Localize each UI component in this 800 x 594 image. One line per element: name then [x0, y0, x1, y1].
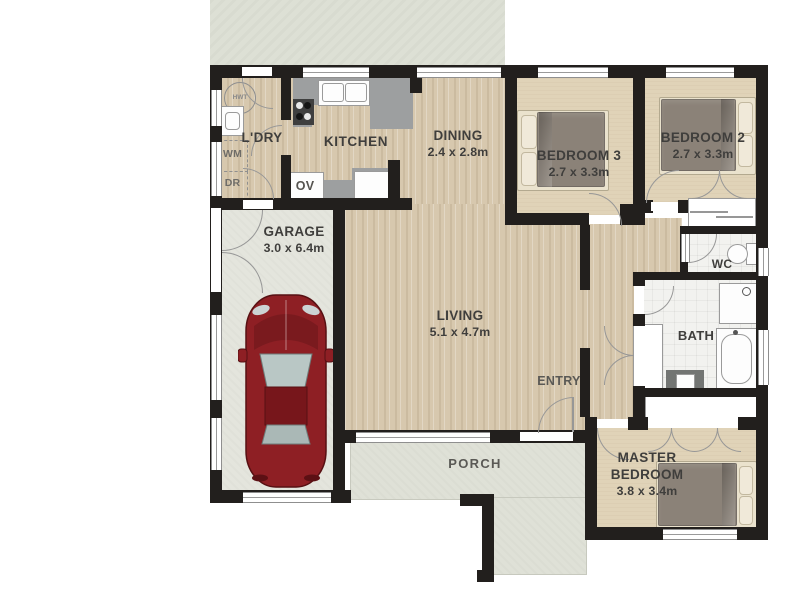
label-wc: WC	[702, 257, 742, 272]
bedroom2-wardrobe	[688, 198, 756, 229]
label-oven: OV	[288, 179, 322, 193]
kitchen-counter-right	[370, 105, 413, 129]
garage-window-1	[211, 315, 222, 400]
sink-basin-right	[345, 83, 367, 102]
label-master-bedroom: MASTER BEDROOM 3.8 x 3.4m	[598, 450, 696, 499]
room-dims: 2.7 x 3.3m	[531, 165, 627, 180]
label-dining: DINING 2.4 x 2.8m	[412, 128, 504, 160]
wardrobe-slider-line	[690, 211, 728, 213]
floor-plan: HWT	[0, 0, 800, 594]
bedroom2-window	[666, 67, 734, 78]
pillow	[739, 466, 753, 495]
linen-closet	[633, 324, 663, 390]
room-dims: 5.1 x 4.7m	[422, 325, 498, 340]
wall-wc-bath	[641, 272, 756, 280]
wall-porch-foot	[477, 570, 494, 582]
room-name: GARAGE	[254, 224, 334, 241]
wall-bedroom2-bottom-right	[678, 200, 688, 213]
burner	[304, 102, 311, 109]
label-porch: PORCH	[443, 456, 507, 472]
room-name: KITCHEN	[308, 134, 404, 151]
shower-head	[742, 287, 751, 296]
burner	[296, 102, 303, 109]
wall-porch-corner-h	[460, 494, 494, 506]
wall-bedroom3-bedroom2	[633, 70, 645, 208]
laundry-window-1	[211, 90, 222, 126]
label-washing-machine: WM	[219, 148, 246, 160]
dining-window	[417, 67, 501, 78]
sink-basin-left	[322, 83, 344, 102]
room-name: BATH	[668, 328, 724, 344]
wall-garage-right	[333, 198, 345, 494]
wall-master-top-a	[628, 417, 648, 430]
garage-window-2	[211, 418, 222, 470]
porch-slab-lower	[492, 497, 587, 575]
bedroom2-door-threshold	[651, 202, 678, 211]
label-bedroom3: BEDROOM 3 2.7 x 3.3m	[531, 148, 627, 180]
room-dims: 2.4 x 2.8m	[412, 145, 504, 160]
laundry-tub-basin	[225, 112, 240, 130]
wall-bath-left-a	[633, 272, 645, 286]
wall-junction-stub	[620, 204, 645, 225]
laundry-garage-threshold	[243, 200, 273, 209]
room-dims: 2.7 x 3.3m	[655, 147, 751, 162]
wall-bath-left-c	[633, 386, 645, 419]
bath-tap	[733, 330, 738, 335]
wall-porch-corner-v	[482, 506, 494, 572]
garage-door	[243, 492, 331, 503]
wall-exterior-right	[756, 65, 768, 540]
bath-window	[758, 330, 769, 385]
label-bath: BATH	[668, 328, 724, 344]
room-name: DINING	[412, 128, 504, 145]
bedroom3-window	[538, 67, 608, 78]
duvet-fold	[722, 463, 735, 526]
garage-side-door-threshold	[211, 208, 221, 292]
label-bedroom2: BEDROOM 2 2.7 x 3.3m	[655, 130, 751, 162]
front-door-threshold	[520, 432, 573, 441]
wall-wc-top	[684, 226, 756, 234]
burner	[296, 113, 303, 120]
back-door-threshold	[242, 67, 272, 76]
room-dims: 3.0 x 6.4m	[254, 241, 334, 256]
wall-service-bottom	[210, 198, 412, 210]
yard-area	[210, 0, 505, 66]
wardrobe-slider-line	[716, 216, 753, 218]
wall-bath-bottom	[645, 388, 756, 397]
room-name: BEDROOM 2	[655, 130, 751, 147]
master-window	[663, 529, 737, 540]
wall-kitchen-stub-bottom	[388, 160, 400, 210]
room-name: MASTER BEDROOM	[598, 450, 696, 484]
front-door-leaf	[572, 397, 574, 432]
bathtub-basin	[721, 334, 752, 384]
wc-window	[758, 248, 769, 276]
burner	[304, 113, 311, 120]
label-dryer: DR	[219, 177, 246, 189]
pillow	[521, 115, 537, 149]
car	[238, 292, 334, 490]
hallway-floor-upper	[588, 218, 682, 280]
stove-cooktop	[293, 99, 314, 125]
label-garage: GARAGE 3.0 x 6.4m	[254, 224, 334, 256]
room-name: PORCH	[443, 456, 507, 472]
room-name: ENTRY	[533, 374, 585, 390]
wall-master-left	[585, 417, 597, 540]
wall-hall-upper	[580, 225, 590, 290]
wall-laundry-kitchen-upper	[281, 70, 291, 120]
wall-bath-left-b	[633, 314, 645, 326]
label-entry: ENTRY	[533, 374, 585, 390]
kitchen-window	[303, 67, 369, 78]
wall-dining-bedroom3	[505, 70, 517, 225]
master-wardrobe-opening	[648, 419, 738, 428]
pillow	[739, 496, 753, 525]
vanity-basin	[676, 374, 695, 389]
bath-door-threshold	[634, 286, 644, 314]
label-kitchen: KITCHEN	[308, 134, 404, 151]
living-front-window	[356, 432, 490, 443]
master-door-threshold	[597, 419, 628, 428]
room-name: BEDROOM 3	[531, 148, 627, 165]
room-name: WC	[702, 257, 742, 272]
label-laundry: L'DRY	[230, 130, 294, 147]
room-name: LIVING	[422, 308, 498, 325]
wall-bedroom3-bottom	[505, 213, 589, 225]
room-name: L'DRY	[230, 130, 294, 147]
shower	[719, 283, 757, 324]
label-living: LIVING 5.1 x 4.7m	[422, 308, 498, 340]
room-dims: 3.8 x 3.4m	[598, 484, 696, 499]
